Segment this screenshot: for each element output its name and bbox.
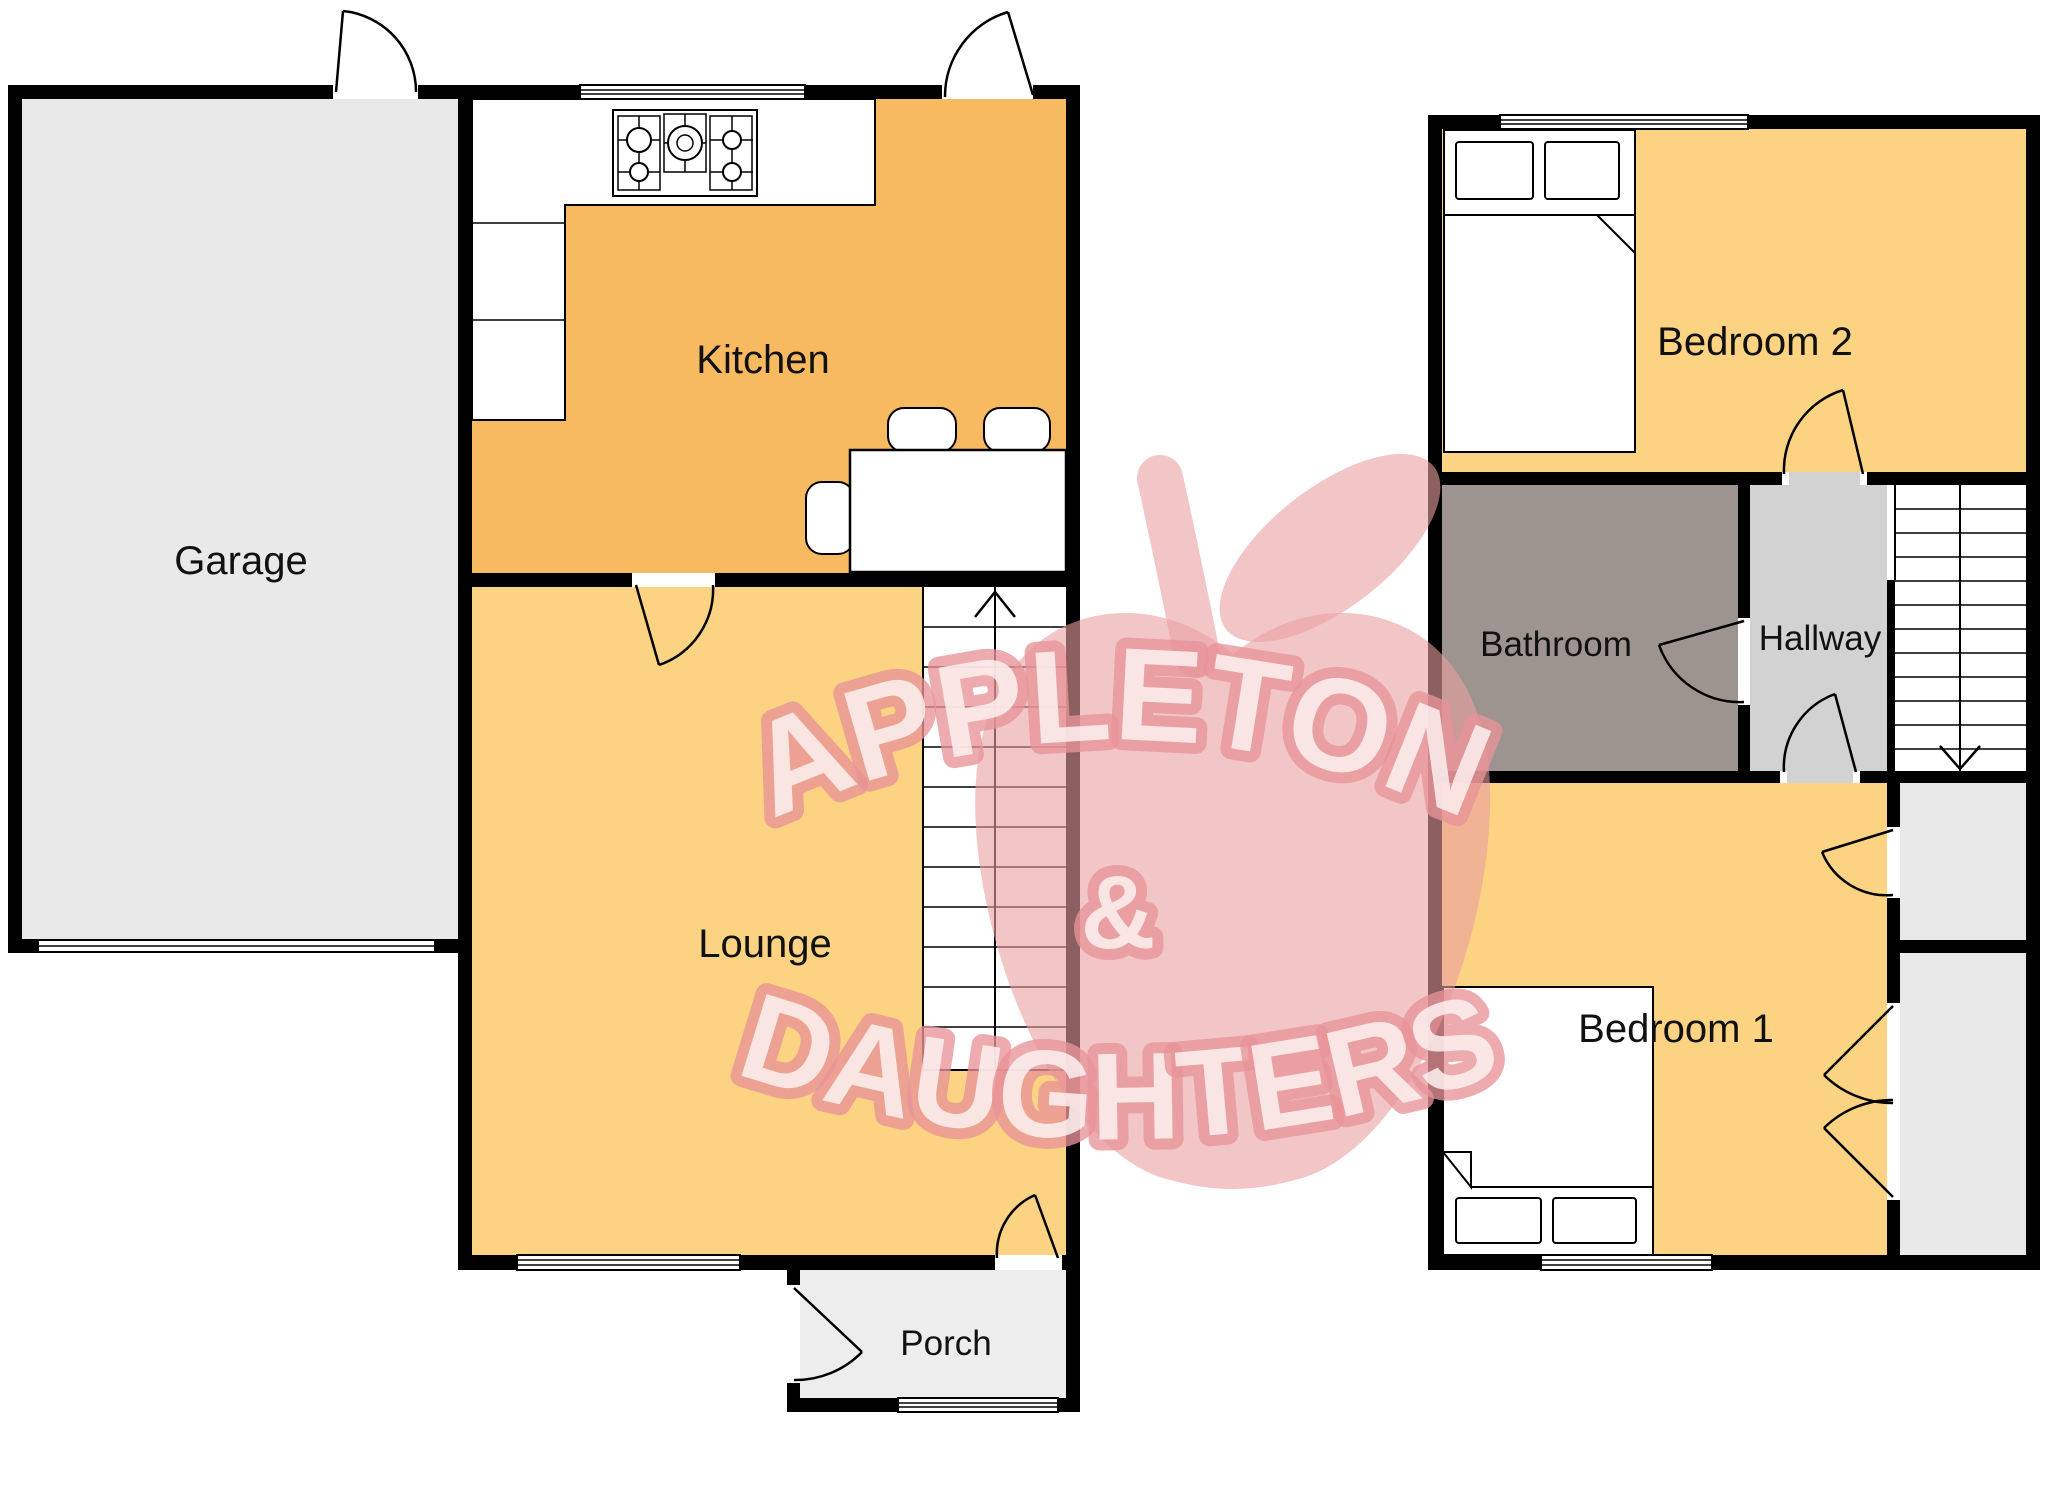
- room-label-bathroom: Bathroom: [1480, 625, 1632, 664]
- first-floor-plan: Bedroom 2 Bathroom Hallway Bedroom 1: [1428, 115, 2040, 1270]
- pillow: [1553, 1198, 1636, 1243]
- kitchen-back-door: [942, 12, 1033, 99]
- table: [850, 450, 1066, 572]
- floorplan-page: Garage Kitchen Lounge Porch: [0, 0, 2048, 1485]
- hallway-door-gap: [1780, 771, 1860, 783]
- room-label-hallway: Hallway: [1759, 619, 1882, 658]
- room-label-lounge: Lounge: [698, 922, 831, 966]
- room-label-porch: Porch: [900, 1324, 991, 1363]
- pillow: [1545, 142, 1619, 199]
- chair: [806, 482, 854, 554]
- lounge-window: [517, 1255, 740, 1270]
- hallway-door-gap: [1782, 472, 1867, 485]
- watermark-ampersand: &: [1080, 855, 1155, 971]
- room-label-bedroom2: Bedroom 2: [1657, 320, 1853, 364]
- room-label-garage: Garage: [174, 539, 307, 583]
- chair: [984, 408, 1050, 452]
- stove-hob: [613, 110, 757, 196]
- floorplan-canvas: Garage Kitchen Lounge Porch: [0, 0, 2048, 1485]
- porch-window: [898, 1398, 1058, 1412]
- closet-bottom-floor: [1900, 953, 2026, 1255]
- garage-vehicle-door: [38, 940, 435, 952]
- chair: [888, 408, 956, 452]
- bedroom2-bed: [1444, 130, 1635, 452]
- bedroom2-window: [1500, 115, 1748, 129]
- pillow: [1456, 142, 1533, 199]
- kitchen-window: [580, 85, 805, 99]
- garage-floor: [22, 99, 458, 939]
- closet-top-floor: [1900, 783, 2026, 940]
- room-label-kitchen: Kitchen: [696, 338, 829, 382]
- bedroom1-window: [1541, 1255, 1712, 1270]
- garage-side-door: [333, 11, 418, 99]
- first-floor-stairs: [1895, 485, 2026, 771]
- pillow: [1456, 1198, 1541, 1243]
- room-label-bedroom1: Bedroom 1: [1578, 1007, 1774, 1051]
